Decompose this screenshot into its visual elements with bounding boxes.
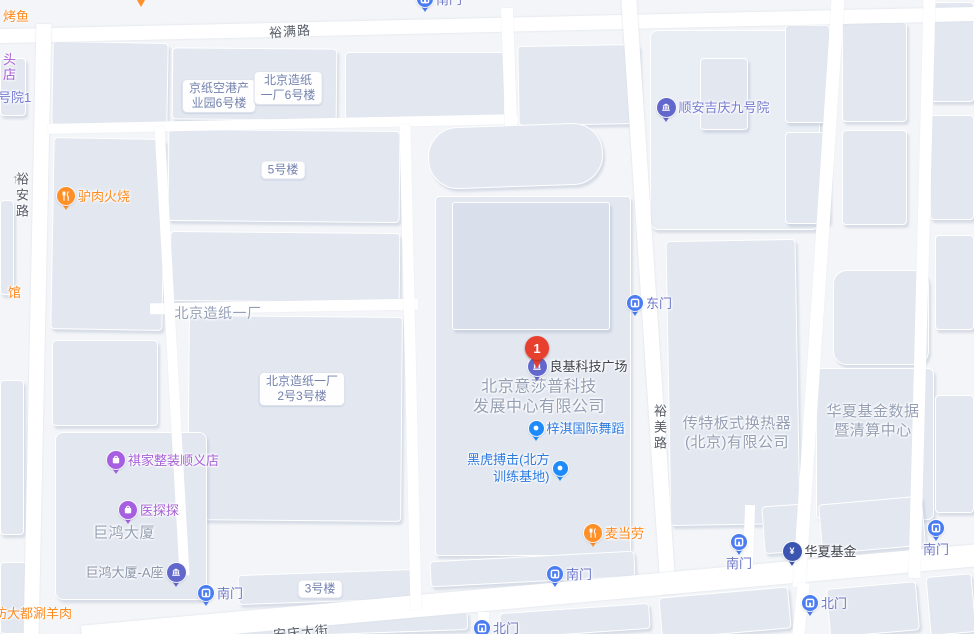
fork-knife-icon <box>587 527 599 539</box>
poi-label[interactable]: 南门 <box>923 541 949 558</box>
poi-label[interactable]: 梓淇国际舞蹈 <box>547 420 625 437</box>
poi-label-line: 祺家整装顺义店 <box>128 452 219 469</box>
poi-label[interactable]: 麦当劳 <box>605 525 644 542</box>
map-building <box>427 122 604 190</box>
building-name-bubble: 京纸空港产业园6号楼 <box>182 79 256 113</box>
map-building <box>666 239 801 526</box>
poi-label[interactable]: 巨鸿大厦-A座 <box>85 564 163 581</box>
poi-marker-civic[interactable] <box>657 98 676 117</box>
poi-label-line: 麦当劳 <box>605 525 644 542</box>
street-poi-text[interactable]: ↑ <box>12 171 19 186</box>
street-poi-text[interactable]: 烤鱼 <box>3 6 29 25</box>
poi-label[interactable]: 南门 <box>436 0 462 8</box>
map-building <box>452 202 610 330</box>
area-label-line: 传特板式换热器 <box>683 414 792 433</box>
map-building <box>345 52 505 120</box>
poi-label-line: 梓淇国际舞蹈 <box>547 420 625 437</box>
poi-label[interactable]: 北门 <box>493 620 519 634</box>
poi-marker-gate[interactable] <box>802 595 818 611</box>
bubble-line: 5号楼 <box>268 163 299 178</box>
map-building <box>926 573 974 634</box>
poi-marker-gate[interactable] <box>417 0 433 7</box>
area-label: 北京造纸一厂 <box>175 305 262 323</box>
poi-marker-fund[interactable]: ¥ <box>783 542 802 561</box>
building-icon <box>170 566 182 578</box>
map-road <box>24 24 52 634</box>
road-label: 裕满路 <box>268 20 311 42</box>
poi-marker-bluedot[interactable] <box>529 421 544 436</box>
map-canvas[interactable]: 裕满路裕安路裕美路安庆大街北京造纸一厂北京意莎普科技发展中心有限公司传特板式换热… <box>0 0 974 634</box>
bubble-line: 北京造纸一厂 <box>266 374 338 389</box>
map-building <box>52 340 158 426</box>
poi-marker-civic[interactable] <box>167 563 186 582</box>
selected-result-pin[interactable]: 1 <box>525 336 549 360</box>
gate-icon <box>930 522 942 534</box>
poi-marker-gate[interactable] <box>627 295 643 311</box>
shop-icon <box>122 504 134 516</box>
yuan-icon: ¥ <box>786 545 798 557</box>
poi-marker-gate[interactable] <box>474 620 490 634</box>
dot-icon <box>530 422 542 434</box>
bubble-line: 北京造纸 <box>261 73 316 88</box>
road-label: 裕美路 <box>650 404 669 452</box>
poi-label[interactable]: 顺安吉庆九号院 <box>679 99 770 116</box>
map-building <box>51 41 168 127</box>
area-label: 巨鸿大厦 <box>93 523 155 542</box>
street-poi-text[interactable]: 馆 <box>8 282 21 301</box>
map-building <box>842 22 907 122</box>
shop-icon <box>110 454 122 466</box>
poi-label-line: 华夏基金 <box>805 543 857 560</box>
area-label: 华夏基金数据暨清算中心 <box>826 402 919 440</box>
gate-icon <box>733 536 745 548</box>
map-building <box>517 44 640 126</box>
bubble-line: 一厂6号楼 <box>261 88 316 103</box>
poi-label-line: 医探探 <box>140 502 179 519</box>
poi-label-line: 南门 <box>566 566 592 583</box>
area-label-line: 发展中心有限公司 <box>473 398 605 418</box>
map-building <box>842 130 907 225</box>
poi-marker-gate[interactable] <box>928 520 944 536</box>
map-building <box>700 58 748 130</box>
gate-icon <box>804 597 816 609</box>
poi-label-line: 南门 <box>436 0 462 8</box>
poi-label[interactable]: 驴肉火烧 <box>78 188 130 205</box>
bubble-line: 2号3号楼 <box>266 389 338 404</box>
poi-label-line: 驴肉火烧 <box>78 188 130 205</box>
building-name-bubble: 5号楼 <box>261 161 306 180</box>
map-building <box>935 235 974 330</box>
bubble-line: 京纸空港产 <box>189 81 249 96</box>
poi-label[interactable]: 北门 <box>821 595 847 612</box>
poi-marker-purple[interactable] <box>107 451 125 469</box>
bubble-line: 业园6号楼 <box>189 96 249 111</box>
area-label-line: 巨鸿大厦 <box>93 523 155 542</box>
area-label-line: 北京意莎普科技 <box>473 378 605 398</box>
poi-label[interactable]: 医探探 <box>140 502 179 519</box>
partial-marker-tail <box>137 0 145 7</box>
poi-label-line: 巨鸿大厦-A座 <box>85 564 163 581</box>
bubble-line: 3号楼 <box>305 582 336 597</box>
area-label-line: 北京造纸一厂 <box>175 305 262 323</box>
poi-marker-gate[interactable] <box>731 534 747 550</box>
map-building <box>930 115 974 220</box>
poi-label-line: 南门 <box>923 541 949 558</box>
area-label-line: 暨清算中心 <box>826 421 919 440</box>
gate-icon <box>200 587 212 599</box>
street-poi-text[interactable]: 坊大都涮羊肉 <box>0 603 72 622</box>
poi-marker-bluedot[interactable] <box>553 461 568 476</box>
poi-label-line: 顺安吉庆九号院 <box>679 99 770 116</box>
gate-icon <box>419 0 431 5</box>
map-building <box>658 586 791 634</box>
map-building <box>935 395 974 513</box>
poi-label[interactable]: 南门 <box>726 555 752 572</box>
gate-icon <box>629 297 641 309</box>
poi-label-line: 南门 <box>217 585 243 602</box>
gate-icon <box>476 622 488 634</box>
street-poi-text[interactable]: 号院1 <box>0 87 31 106</box>
poi-label[interactable]: 良基科技广场 <box>550 358 628 375</box>
gate-icon <box>549 568 561 580</box>
dot-icon <box>554 462 566 474</box>
poi-label-line: 黑虎搏击(北方 <box>467 451 549 468</box>
map-building <box>170 231 401 303</box>
building-name-bubble: 北京造纸一厂6号楼 <box>254 71 323 105</box>
building-name-bubble: 3号楼 <box>298 580 343 599</box>
svg-text:¥: ¥ <box>789 546 794 556</box>
poi-label-line: 南门 <box>726 555 752 572</box>
poi-label[interactable]: 东门 <box>646 295 672 312</box>
map-building <box>187 315 403 522</box>
building-icon <box>660 101 672 113</box>
poi-label[interactable]: 祺家整装顺义店 <box>128 452 219 469</box>
area-label: 传特板式换热器(北京)有限公司 <box>683 414 792 452</box>
poi-label[interactable]: 华夏基金 <box>805 543 857 560</box>
map-building <box>50 137 165 331</box>
poi-marker-gate[interactable] <box>198 585 214 601</box>
area-label-line: 华夏基金数据 <box>826 402 919 421</box>
poi-marker-food[interactable] <box>57 187 75 205</box>
poi-label-line: 训练基地) <box>467 468 549 485</box>
area-label: 北京意莎普科技发展中心有限公司 <box>473 378 605 419</box>
fork-knife-icon <box>60 190 72 202</box>
poi-marker-gate[interactable] <box>547 566 563 582</box>
building-name-bubble: 北京造纸一厂2号3号楼 <box>259 372 345 406</box>
poi-label[interactable]: 南门 <box>217 585 243 602</box>
poi-label-line: 良基科技广场 <box>550 358 628 375</box>
poi-marker-food[interactable] <box>584 524 602 542</box>
poi-label[interactable]: 黑虎搏击(北方训练基地) <box>467 451 549 485</box>
poi-label-line: 北门 <box>821 595 847 612</box>
map-building <box>0 380 24 535</box>
poi-label[interactable]: 南门 <box>566 566 592 583</box>
map-road <box>399 124 421 610</box>
street-poi-text[interactable]: 店 <box>3 64 16 83</box>
poi-label-line: 北门 <box>493 620 519 634</box>
poi-label-line: 东门 <box>646 295 672 312</box>
poi-marker-purple[interactable] <box>119 501 137 519</box>
area-label-line: (北京)有限公司 <box>683 433 792 452</box>
